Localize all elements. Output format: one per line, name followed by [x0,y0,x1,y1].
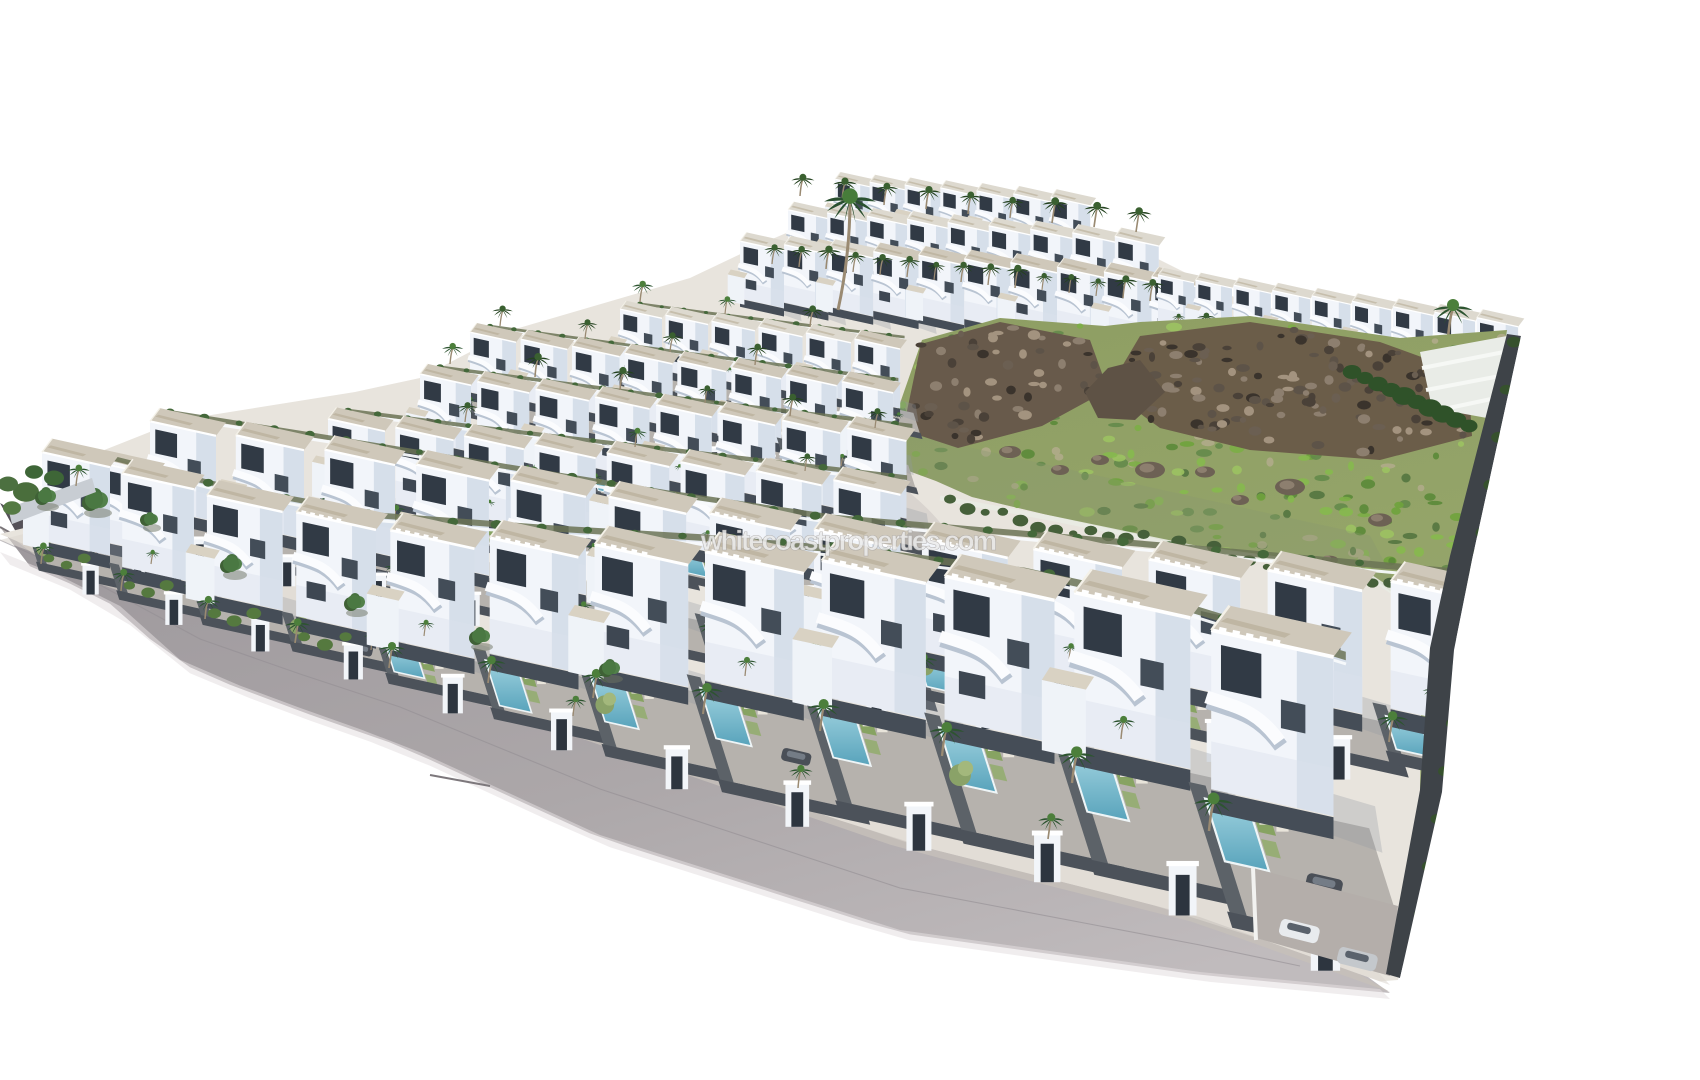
svg-text:whitecoastproperties.com: whitecoastproperties.com [700,525,996,556]
